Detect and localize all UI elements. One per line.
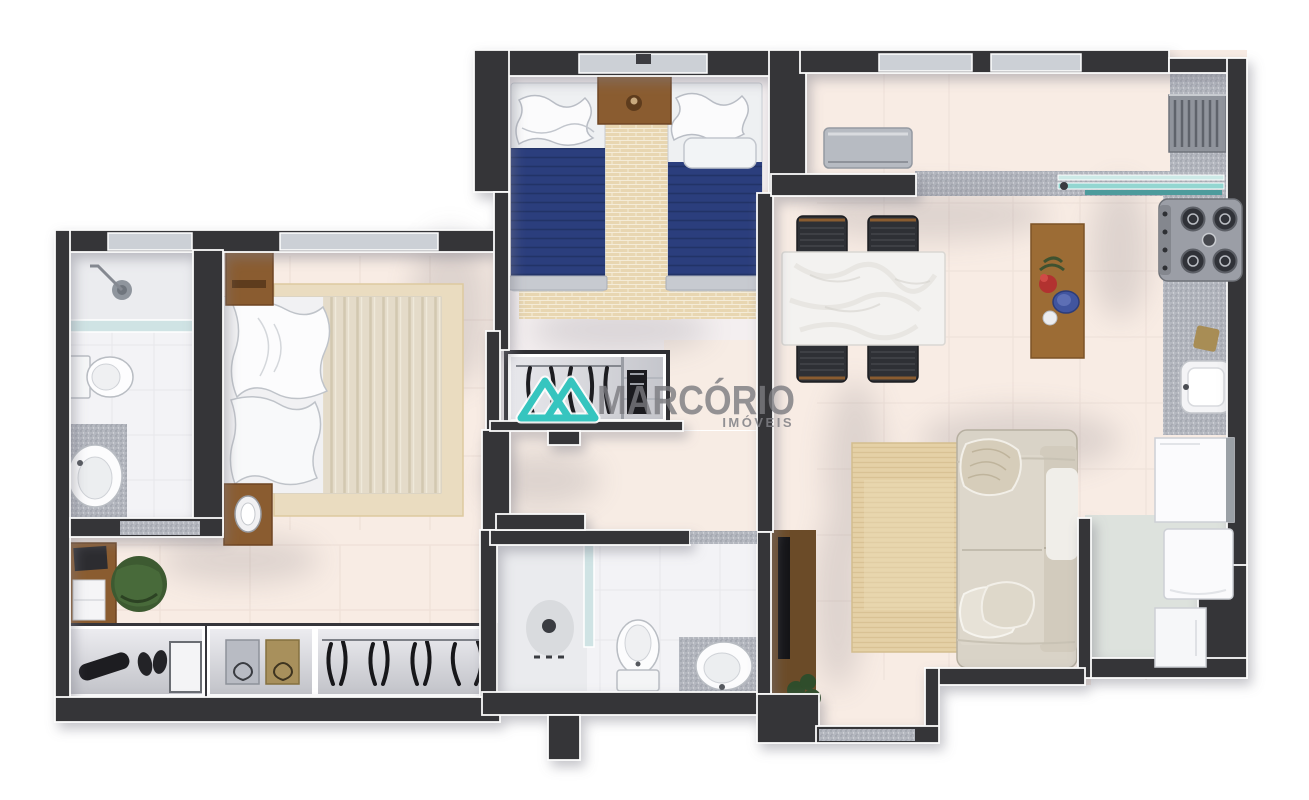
svg-text:IMÓVEIS: IMÓVEIS — [722, 415, 794, 430]
